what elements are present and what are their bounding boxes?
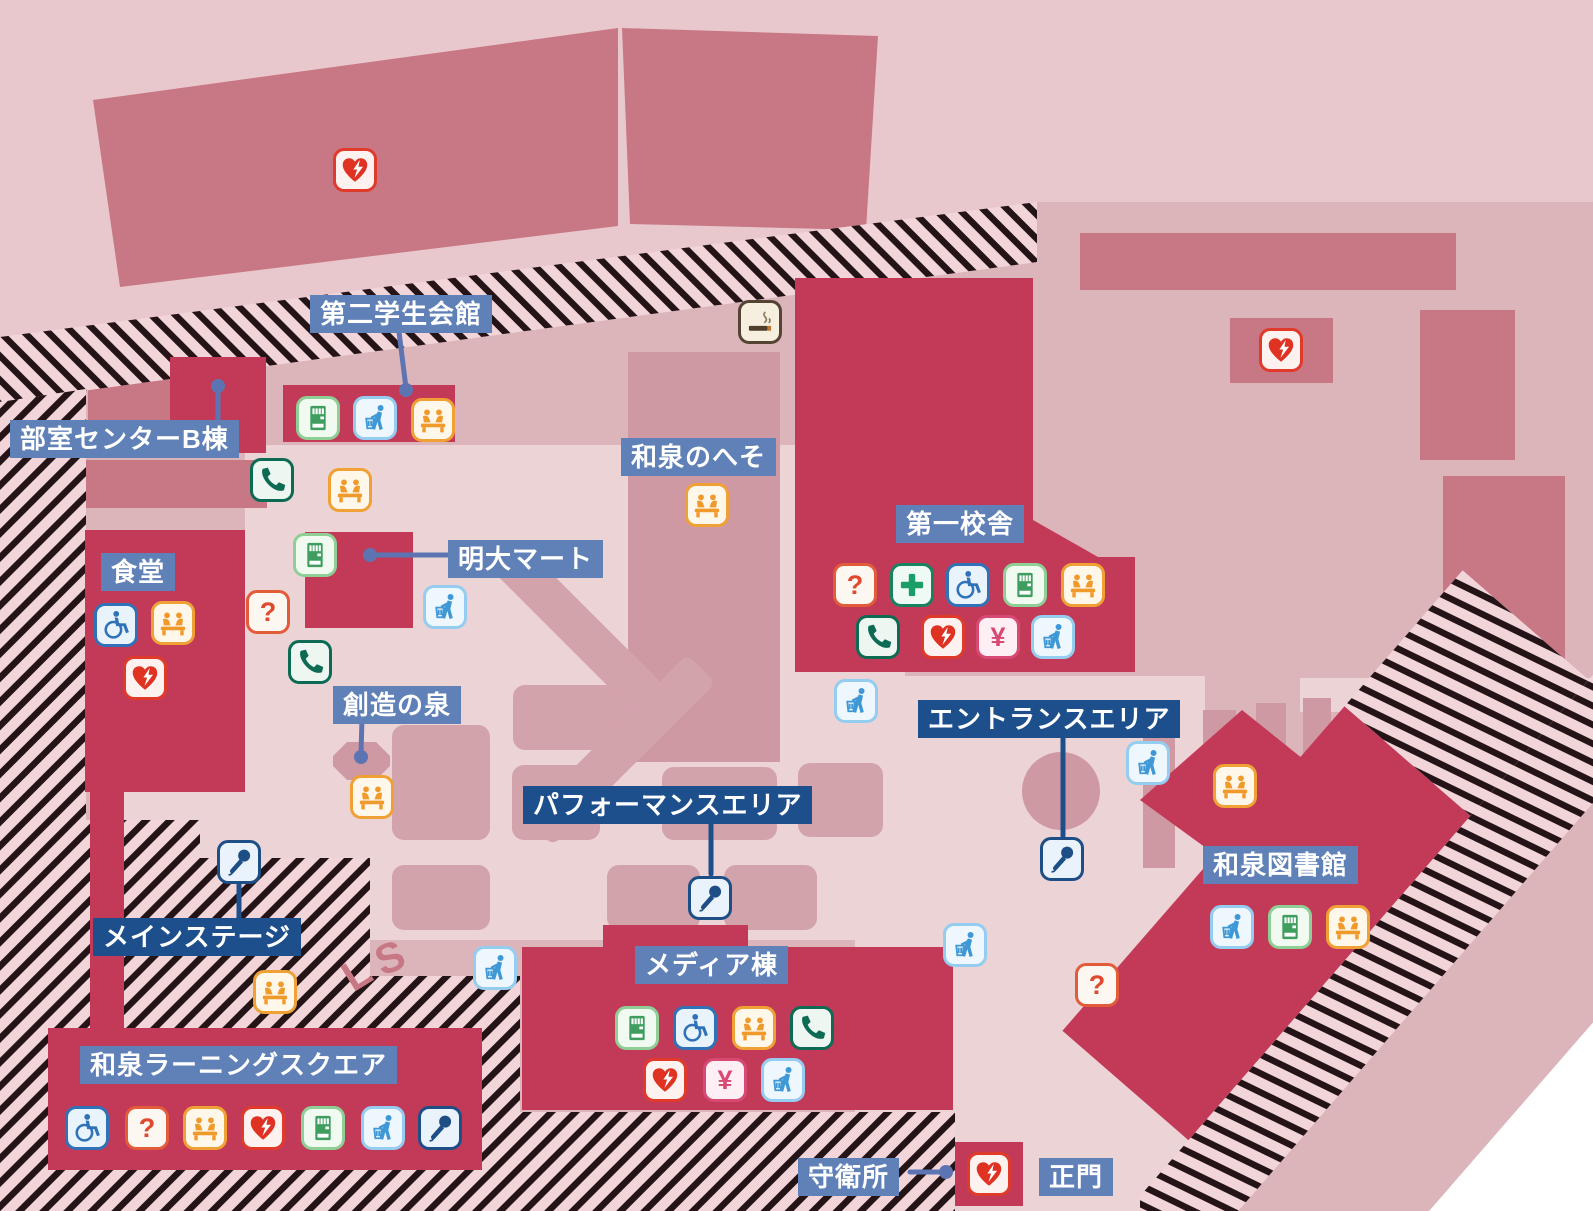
bench-icon bbox=[1326, 905, 1370, 949]
aed-icon bbox=[967, 1152, 1011, 1196]
bench-icon bbox=[1213, 764, 1257, 808]
bench-icon bbox=[151, 601, 195, 645]
vending-icon bbox=[301, 1106, 345, 1150]
mic-icon bbox=[418, 1106, 462, 1150]
wheelchair-icon bbox=[94, 603, 138, 647]
label-meidai-mart: 明大マート bbox=[448, 540, 603, 578]
trash-icon bbox=[473, 946, 517, 990]
label-main-stage: メインステージ bbox=[93, 918, 301, 956]
trash-icon bbox=[361, 1106, 405, 1150]
bench-icon bbox=[328, 468, 372, 512]
smoking-icon bbox=[738, 300, 782, 344]
bench-icon bbox=[350, 775, 394, 819]
phone-icon bbox=[250, 458, 294, 502]
mic-icon bbox=[1040, 837, 1084, 881]
wheelchair-icon bbox=[946, 563, 990, 607]
label-izumi-learning-square: 和泉ラーニングスクエア bbox=[80, 1046, 397, 1084]
label-guard-station: 守衛所 bbox=[798, 1158, 899, 1196]
vending-icon bbox=[615, 1006, 659, 1050]
label-club-center-b: 部室センターB棟 bbox=[10, 420, 239, 458]
label-main-gate: 正門 bbox=[1039, 1158, 1113, 1196]
phone-icon bbox=[856, 615, 900, 659]
label-cafeteria: 食堂 bbox=[101, 553, 175, 591]
label-second-student-hall: 第二学生会館 bbox=[310, 295, 492, 333]
label-izumi-no-heso: 和泉のへそ bbox=[621, 438, 776, 476]
label-media-building: メディア棟 bbox=[635, 946, 788, 984]
aed-icon bbox=[241, 1106, 285, 1150]
atm-icon: ¥ bbox=[703, 1058, 747, 1102]
info-icon: ? bbox=[1075, 963, 1119, 1007]
aed-icon bbox=[643, 1058, 687, 1102]
trash-icon bbox=[1031, 615, 1075, 659]
label-entrance-area: エントランスエリア bbox=[918, 700, 1180, 738]
trash-icon bbox=[1126, 741, 1170, 785]
bench-icon bbox=[411, 398, 455, 442]
wheelchair-icon bbox=[673, 1006, 717, 1050]
wheelchair-icon bbox=[65, 1106, 109, 1150]
trash-icon bbox=[1210, 905, 1254, 949]
bench-icon bbox=[183, 1106, 227, 1150]
atm-icon: ¥ bbox=[976, 615, 1020, 659]
info-icon: ? bbox=[246, 590, 290, 634]
aed-icon bbox=[123, 656, 167, 700]
vending-icon bbox=[293, 533, 337, 577]
firstaid-icon bbox=[890, 563, 934, 607]
trash-icon bbox=[353, 396, 397, 440]
aed-icon bbox=[333, 148, 377, 192]
aed-icon bbox=[1259, 328, 1303, 372]
info-icon: ? bbox=[125, 1106, 169, 1150]
phone-icon bbox=[790, 1006, 834, 1050]
ground-mark-S: S bbox=[368, 931, 412, 986]
map-overlay: ????¥¥第二学生会館部室センターB棟明大マート和泉のへそ食堂第一校舎創造の泉… bbox=[0, 0, 1593, 1211]
vending-icon bbox=[1268, 905, 1312, 949]
bench-icon bbox=[1061, 563, 1105, 607]
label-fountain-of-creation: 創造の泉 bbox=[333, 686, 461, 724]
campus-map: ????¥¥第二学生会館部室センターB棟明大マート和泉のへそ食堂第一校舎創造の泉… bbox=[0, 0, 1593, 1211]
label-izumi-library: 和泉図書館 bbox=[1203, 846, 1358, 884]
mic-icon bbox=[217, 840, 261, 884]
label-performance-area: パフォーマンスエリア bbox=[523, 786, 812, 824]
mic-icon bbox=[688, 876, 732, 920]
trash-icon bbox=[761, 1058, 805, 1102]
bench-icon bbox=[732, 1006, 776, 1050]
label-first-school-building: 第一校舎 bbox=[896, 505, 1024, 543]
trash-icon bbox=[423, 585, 467, 629]
bench-icon bbox=[253, 970, 297, 1014]
bench-icon bbox=[685, 483, 729, 527]
trash-icon bbox=[943, 923, 987, 967]
phone-icon bbox=[288, 640, 332, 684]
vending-icon bbox=[1003, 563, 1047, 607]
info-icon: ? bbox=[833, 563, 877, 607]
aed-icon bbox=[921, 615, 965, 659]
vending-icon bbox=[296, 396, 340, 440]
trash-icon bbox=[834, 679, 878, 723]
